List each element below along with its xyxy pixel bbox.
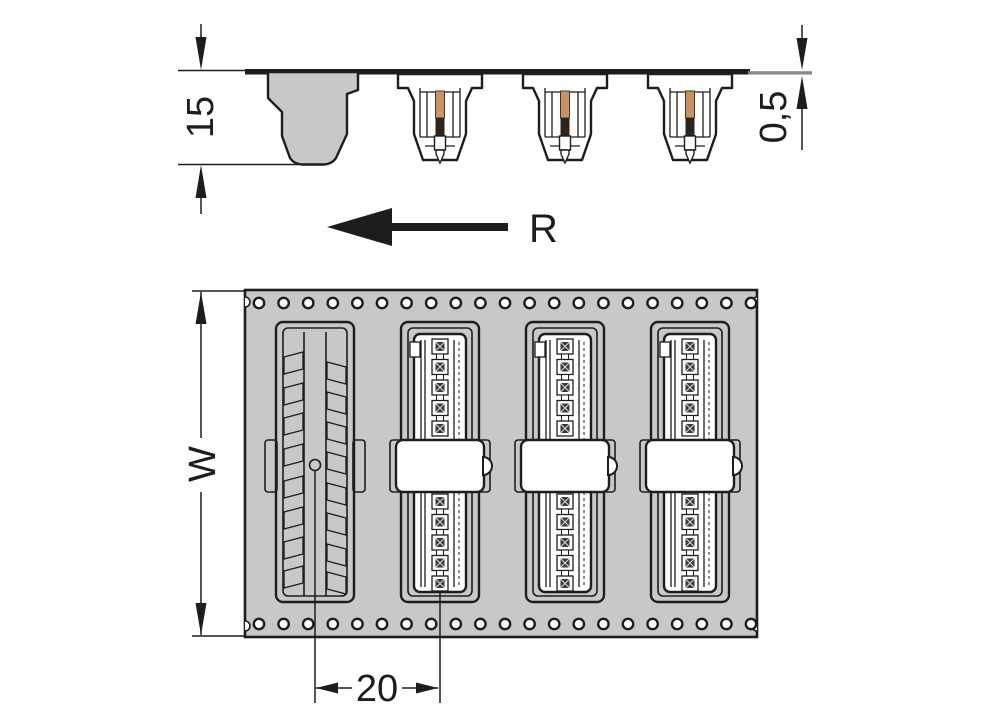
sprocket-hole bbox=[451, 298, 461, 308]
pocket-center-hole bbox=[310, 460, 321, 471]
cover-tape-bump bbox=[733, 457, 742, 475]
pocket-pitch-label: 20 bbox=[356, 668, 398, 710]
contact-link bbox=[562, 530, 569, 536]
contact-link bbox=[562, 509, 569, 515]
sprocket-hole bbox=[451, 619, 461, 629]
edge-notch bbox=[240, 621, 250, 631]
contact-link bbox=[437, 395, 444, 401]
dimension-tape-thickness: 0,5 bbox=[753, 25, 808, 150]
sprocket-hole bbox=[377, 298, 387, 308]
sprocket-hole bbox=[697, 619, 707, 629]
arrowhead-down-icon bbox=[196, 37, 207, 70]
arrowhead-up-icon bbox=[196, 165, 207, 198]
unwind-direction-label: R bbox=[529, 207, 558, 251]
sprocket-hole bbox=[352, 298, 362, 308]
connector-section bbox=[648, 74, 732, 163]
contact-link bbox=[437, 550, 444, 556]
contact-link bbox=[562, 571, 569, 577]
side-view: 15 0,5 bbox=[178, 24, 812, 214]
sprocket-hole bbox=[303, 619, 313, 629]
sprocket-hole bbox=[549, 619, 559, 629]
technical-drawing-canvas: 15 0,5 R W bbox=[0, 0, 1000, 720]
connector-sections bbox=[398, 74, 732, 163]
contact-link bbox=[437, 530, 444, 536]
sprocket-hole bbox=[623, 619, 633, 629]
contact-link bbox=[687, 354, 694, 360]
cover-tape-bump bbox=[483, 457, 492, 475]
sprocket-hole bbox=[574, 619, 584, 629]
sprocket-hole bbox=[328, 619, 338, 629]
contact-link bbox=[437, 375, 444, 381]
cover-tape bbox=[396, 440, 484, 492]
contact-link bbox=[687, 395, 694, 401]
sprocket-hole bbox=[524, 298, 534, 308]
sprocket-hole bbox=[647, 619, 657, 629]
sprocket-hole bbox=[401, 298, 411, 308]
direction-arrow-shaft bbox=[389, 223, 508, 231]
sprocket-hole bbox=[475, 298, 485, 308]
contact-link bbox=[437, 571, 444, 577]
sprocket-hole bbox=[647, 298, 657, 308]
sprocket-hole bbox=[574, 298, 584, 308]
contact-link bbox=[562, 354, 569, 360]
sprocket-hole bbox=[500, 298, 510, 308]
sprocket-hole bbox=[500, 619, 510, 629]
unreel-direction: R bbox=[327, 207, 558, 251]
connector-section bbox=[398, 74, 482, 163]
sprocket-hole bbox=[746, 298, 756, 308]
arrowhead-up-icon bbox=[196, 292, 207, 324]
pin-contact-copper bbox=[686, 91, 695, 118]
contact-link bbox=[437, 509, 444, 515]
pin-contact-dark bbox=[561, 118, 570, 136]
contact-link bbox=[562, 395, 569, 401]
sprocket-hole bbox=[549, 298, 559, 308]
empty-pocket-section bbox=[268, 72, 358, 165]
direction-arrow-icon bbox=[327, 208, 392, 246]
pin-contact-dark bbox=[686, 118, 695, 136]
sprocket-hole bbox=[598, 619, 608, 629]
pocket-depth-label: 15 bbox=[180, 96, 222, 138]
arrowhead-up-icon bbox=[797, 76, 808, 109]
arrowhead-down-icon bbox=[797, 38, 808, 70]
sprocket-hole bbox=[672, 619, 682, 629]
contact-link bbox=[687, 509, 694, 515]
sprocket-hole bbox=[352, 619, 362, 629]
connector-key-tab bbox=[410, 342, 420, 357]
tape-width-label: W bbox=[182, 446, 224, 482]
sprocket-hole bbox=[697, 298, 707, 308]
connector-section bbox=[523, 74, 607, 163]
tape-packaging-drawing: 15 0,5 R W bbox=[0, 0, 1000, 720]
cover-tape bbox=[521, 440, 609, 492]
sprocket-hole bbox=[746, 619, 756, 629]
contact-link bbox=[562, 375, 569, 381]
sprocket-hole bbox=[426, 298, 436, 308]
contact-link bbox=[687, 416, 694, 422]
sprocket-hole bbox=[426, 619, 436, 629]
sprocket-hole bbox=[524, 619, 534, 629]
contact-link bbox=[687, 550, 694, 556]
sprocket-hole bbox=[721, 298, 731, 308]
contact-link bbox=[687, 530, 694, 536]
contact-link bbox=[687, 375, 694, 381]
sprocket-hole bbox=[623, 298, 633, 308]
sprocket-hole bbox=[254, 298, 264, 308]
sprocket-hole bbox=[401, 619, 411, 629]
contact-link bbox=[687, 571, 694, 577]
pin-contact-copper bbox=[436, 91, 445, 118]
sprocket-hole bbox=[475, 619, 485, 629]
pin-contact-dark bbox=[436, 118, 445, 136]
arrowhead-right-icon bbox=[416, 683, 438, 694]
pin-sleeve bbox=[685, 136, 696, 150]
sprocket-hole bbox=[672, 298, 682, 308]
sprocket-hole bbox=[278, 619, 288, 629]
tape-break-line bbox=[748, 71, 812, 74]
sprocket-hole bbox=[328, 298, 338, 308]
tape-thickness-label: 0,5 bbox=[753, 91, 795, 144]
sprocket-hole bbox=[303, 298, 313, 308]
cover-tape bbox=[646, 440, 734, 492]
connector-key-tab bbox=[535, 342, 545, 357]
contact-link bbox=[562, 550, 569, 556]
cover-tape-bump bbox=[608, 457, 617, 475]
arrowhead-left-icon bbox=[316, 683, 338, 694]
pin-sleeve bbox=[560, 136, 571, 150]
pin-sleeve bbox=[435, 136, 446, 150]
arrowhead-down-icon bbox=[196, 603, 207, 635]
sprocket-hole bbox=[377, 619, 387, 629]
pin-contact-copper bbox=[561, 91, 570, 118]
contact-link bbox=[562, 416, 569, 422]
sprocket-hole bbox=[598, 298, 608, 308]
connector-key-tab bbox=[660, 342, 670, 357]
dimension-tape-width: W bbox=[182, 291, 246, 636]
sprocket-hole bbox=[254, 619, 264, 629]
edge-notch bbox=[240, 297, 250, 307]
sprocket-hole bbox=[721, 619, 731, 629]
top-view: W 20 bbox=[182, 290, 762, 710]
contact-link bbox=[437, 416, 444, 422]
sprocket-hole bbox=[278, 298, 288, 308]
contact-link bbox=[437, 354, 444, 360]
